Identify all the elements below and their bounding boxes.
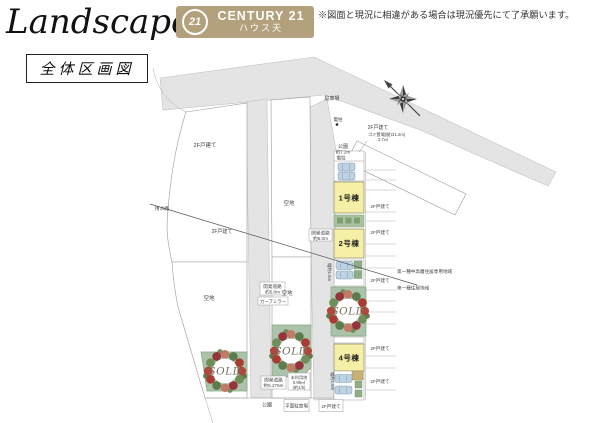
landscape-plan-page: Landscape 全体区画図 21 CENTURY 21 ハウス天 ※図面と現… — [0, 0, 600, 423]
house-2f-label: 2F戸建て — [370, 277, 390, 284]
building-2-label: 2号棟 — [339, 238, 360, 248]
garden-square — [355, 381, 362, 388]
road-width-label: 約5.0m — [265, 289, 280, 296]
house-2f-label: 2F戸建て — [370, 229, 390, 236]
car-icon — [335, 386, 352, 394]
park-width-label: 約7.2m — [336, 149, 351, 156]
zone-residential-label: 第一種住居地域 — [397, 285, 430, 292]
site-plan-map: SOLD — [0, 0, 600, 423]
bottom-left-edge — [205, 398, 213, 423]
unused-note-label: (約1/5) — [293, 384, 306, 391]
road-width-label: 約5.275m — [264, 382, 284, 389]
park-label: 公園 — [262, 403, 272, 409]
vacant-lot-label: 空地 — [283, 199, 295, 207]
center-upper-lot — [271, 97, 311, 257]
house-2f-label: 2F戸建て — [370, 203, 390, 210]
building-1-label: 1号棟 — [339, 193, 360, 203]
car-icon — [335, 375, 352, 383]
utility-pole-label: 電柱 — [334, 116, 343, 123]
width-note-label: 幅約1.5m — [329, 372, 336, 391]
hedge-square — [337, 218, 343, 224]
small-strip — [334, 337, 364, 343]
width-note-label: 幅約1.5m — [326, 263, 333, 282]
car-icon — [338, 163, 355, 171]
garden-square — [355, 390, 362, 397]
parking-lot-label: 駐車場 — [324, 95, 339, 102]
house-2f-label: 2F戸建て — [370, 378, 390, 385]
car-icon — [336, 271, 353, 279]
hedge-square — [346, 218, 352, 224]
utility-pole-label: 電柱 — [337, 155, 346, 162]
vacant-lot-label: 空地 — [281, 289, 293, 297]
center-dev-road — [246, 99, 271, 398]
house-2f-label: 2F戸建て — [368, 124, 389, 131]
road-width-label: 約5.0m — [313, 235, 328, 242]
shed-box — [352, 371, 363, 380]
zone-mid-high-label: 第一種中高層住居専用地域 — [397, 268, 453, 275]
trash-label-2: 2.7㎡ — [378, 136, 389, 142]
building-4-label: 4号棟 — [339, 353, 360, 363]
flat-parking-label: 平面駐車場 — [285, 403, 308, 410]
vacant-lot-label: 空地 — [203, 294, 215, 302]
upper-left-lot — [167, 103, 247, 262]
utility-pole-dot — [336, 123, 339, 126]
neighbor-lot-lines — [366, 152, 397, 400]
house-2f-label: 2F戸建て — [321, 403, 341, 410]
hedge-square — [354, 218, 360, 224]
house-2f-label: 2F戸建て — [194, 141, 217, 149]
curve-mirror-label: カーブミラー — [260, 298, 286, 305]
garden-square — [354, 271, 362, 279]
house-2f-label: 2F戸建て — [370, 345, 390, 352]
car-icon — [338, 172, 355, 180]
house-2f-label: 2F戸建て — [212, 228, 233, 235]
waterway-label: 用水路 — [155, 205, 170, 212]
